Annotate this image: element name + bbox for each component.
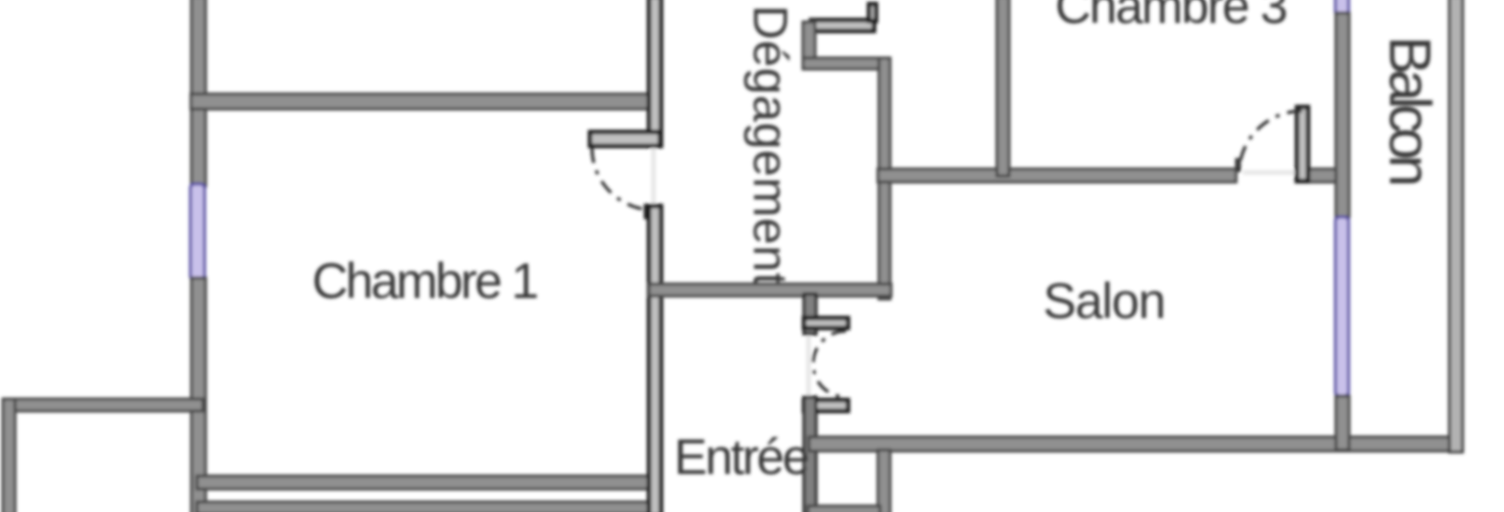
svg-text:Dégagement: Dégagement [743, 5, 796, 286]
svg-text:Entrée: Entrée [674, 429, 810, 485]
svg-text:Balcon: Balcon [1377, 36, 1442, 187]
svg-text:Chambre 3: Chambre 3 [1055, 0, 1288, 34]
svg-text:Salon: Salon [1043, 273, 1166, 329]
svg-text:Chambre 1: Chambre 1 [312, 253, 539, 309]
